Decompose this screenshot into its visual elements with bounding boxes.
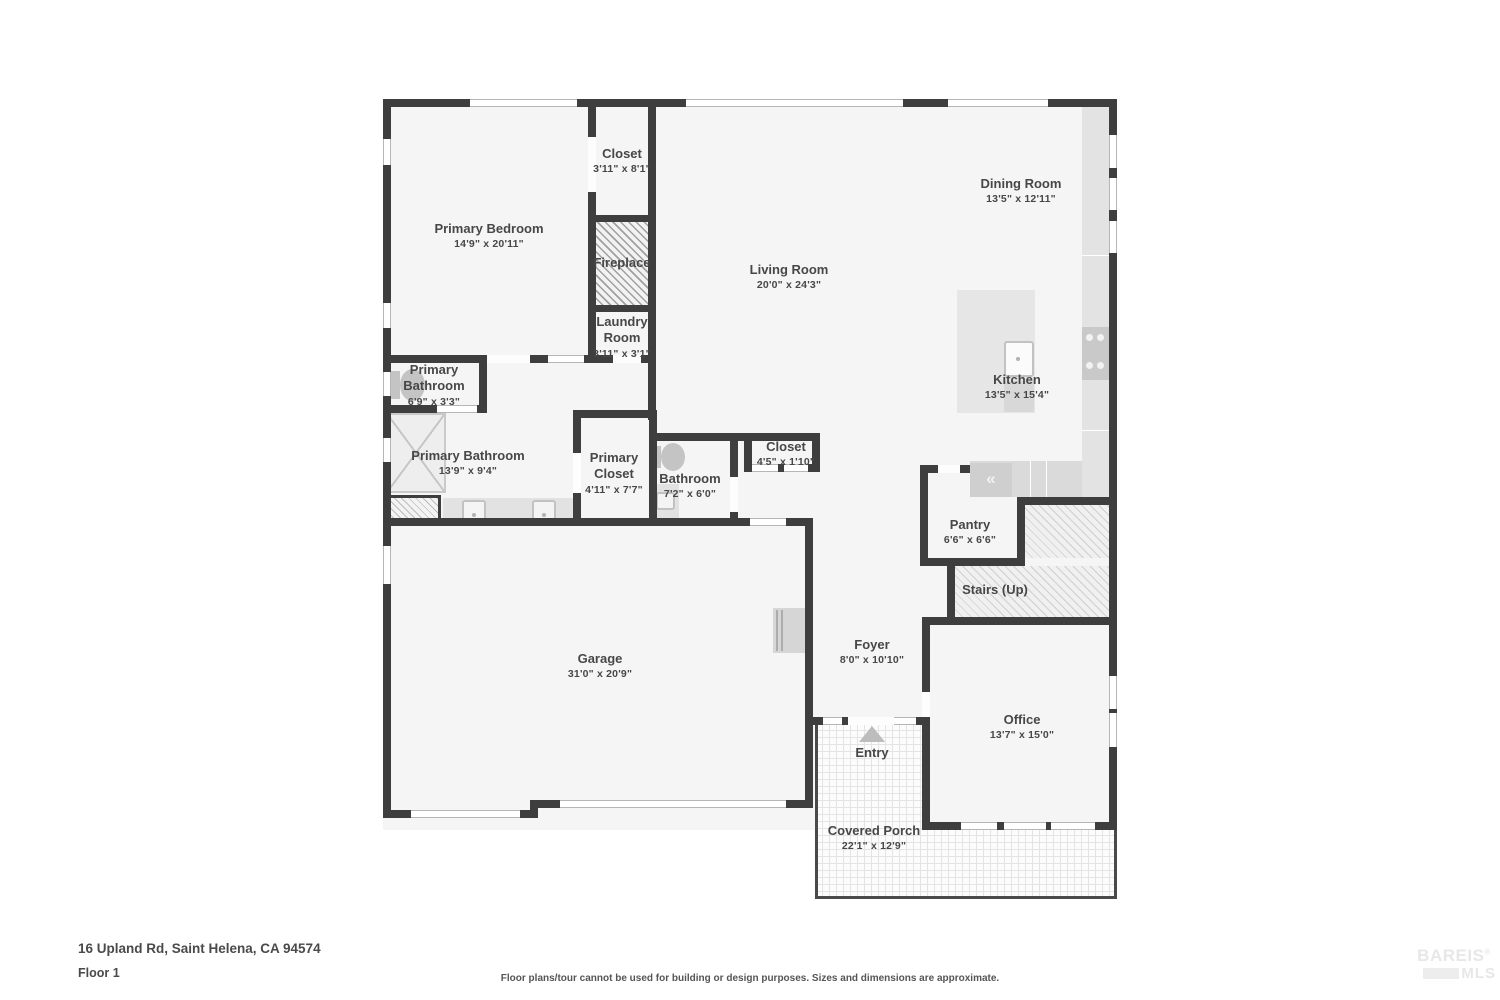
- counter-divider: [1082, 430, 1109, 431]
- wall-segment: [383, 396, 391, 438]
- wall-segment: [383, 99, 470, 107]
- entry-arrow-icon: [859, 726, 885, 742]
- wall-segment: [383, 328, 391, 372]
- porch-border-left: [815, 717, 818, 899]
- wall-segment: [1109, 253, 1117, 676]
- wall-segment: [922, 717, 930, 830]
- room-name: Bathroom: [645, 471, 735, 487]
- room-name: Closet: [572, 146, 672, 162]
- room-dims: 8'0" x 10'10": [817, 654, 927, 666]
- room-dims: 6'9" x 3'3": [393, 396, 475, 408]
- room-dims: 13'7" x 15'0": [967, 729, 1077, 741]
- wall-segment: [903, 99, 948, 107]
- room-name: Fireplace: [582, 255, 662, 271]
- logo-bar: [1423, 968, 1459, 979]
- window: [750, 518, 786, 526]
- wall-segment: [960, 465, 970, 473]
- window: [948, 99, 1048, 107]
- wall-segment: [916, 717, 930, 725]
- wall-segment: [530, 355, 548, 363]
- room-label-office: Office 13'7" x 15'0": [967, 712, 1077, 741]
- room-name: Stairs (Up): [940, 582, 1050, 598]
- room-label-living: Living Room 20'0" x 24'3": [729, 262, 849, 291]
- room-dims: 20'0" x 24'3": [729, 279, 849, 291]
- wall-segment: [573, 418, 581, 453]
- room-label-stairs: Stairs (Up): [940, 582, 1050, 598]
- wall-segment: [383, 518, 750, 526]
- burner-icon: [1086, 334, 1093, 341]
- room-dims: 3'11" x 3'1": [590, 348, 654, 360]
- door-opening: [922, 692, 930, 717]
- room-name: Garage: [540, 651, 660, 667]
- wall-segment: [997, 822, 1004, 830]
- window: [383, 546, 391, 584]
- room-label-pantry: Pantry 6'6" x 6'6": [925, 517, 1015, 546]
- room-name: Primary Closet: [574, 450, 654, 483]
- wall-segment: [922, 617, 1117, 625]
- wall-segment: [383, 165, 391, 303]
- wall-segment: [383, 584, 391, 818]
- wall-segment: [786, 518, 813, 526]
- wall-segment: [1048, 99, 1117, 107]
- wall-segment: [805, 518, 813, 808]
- water-heater-stripe: [776, 610, 778, 651]
- room-label-foyer: Foyer 8'0" x 10'10": [817, 637, 927, 666]
- room-label-garage: Garage 31'0" x 20'9": [540, 651, 660, 680]
- wall-segment: [588, 107, 596, 137]
- room-label-closet-top: Closet 3'11" x 8'1": [572, 146, 672, 175]
- room-dims: 22'1" x 12'9": [804, 840, 944, 852]
- room-label-covered-porch: Covered Porch 22'1" x 12'9": [804, 823, 944, 852]
- room-name: Primary Bedroom: [409, 221, 569, 237]
- room-label-dining: Dining Room 13'5" x 12'11": [961, 176, 1081, 205]
- wall-segment: [920, 558, 1025, 566]
- counter-divider: [1082, 255, 1109, 256]
- room-name: Foyer: [817, 637, 927, 653]
- kitchen-wall-counter: [1082, 107, 1109, 497]
- wall-segment: [520, 810, 538, 818]
- room-name: Office: [967, 712, 1077, 728]
- window: [470, 99, 577, 107]
- wall-segment: [1017, 497, 1025, 565]
- property-address: 16 Upland Rd, Saint Helena, CA 94574: [78, 941, 321, 956]
- wall-segment: [1109, 168, 1117, 178]
- window: [823, 717, 842, 725]
- room-name: Pantry: [925, 517, 1015, 533]
- burner-icon: [1097, 334, 1104, 341]
- room-name: Primary Bathroom: [388, 448, 548, 464]
- room-dims: 6'6" x 6'6": [925, 534, 1015, 546]
- stairs-hatch-upper: [1025, 503, 1109, 558]
- wall-segment: [538, 800, 560, 808]
- wall-segment: [383, 107, 391, 139]
- room-name: Laundry Room: [590, 314, 654, 347]
- burner-icon: [1097, 362, 1104, 369]
- window: [383, 303, 391, 328]
- room-name: Entry: [832, 745, 912, 761]
- wall-segment: [573, 493, 581, 525]
- room-dims: 4'11" x 7'7": [574, 484, 654, 496]
- floor-plan-canvas: «: [0, 0, 1500, 1000]
- room-dims: 4'5" x 1'10": [741, 456, 831, 468]
- room-label-kitchen: Kitchen 13'5" x 15'4": [967, 372, 1067, 401]
- wall-segment: [920, 465, 928, 565]
- wall-segment: [1095, 822, 1117, 830]
- disclaimer-text: Floor plans/tour cannot be used for buil…: [0, 973, 1500, 984]
- garage-door: [560, 800, 786, 808]
- window: [1004, 822, 1046, 830]
- room-name: Primary Bathroom: [393, 362, 475, 395]
- counter-divider: [1046, 461, 1047, 497]
- faucet-icon: [472, 513, 476, 517]
- room-label-primary-bedroom: Primary Bedroom 14'9" x 20'11": [409, 221, 569, 250]
- room-dims: 14'9" x 20'11": [409, 238, 569, 250]
- registered-mark-icon: ®: [1484, 947, 1490, 956]
- room-dims: 13'9" x 9'4": [388, 465, 548, 477]
- porch-border-bottom: [815, 896, 1117, 899]
- wall-segment: [730, 512, 738, 525]
- garage-door: [411, 810, 520, 818]
- room-dims: 3'11" x 8'1": [572, 163, 672, 175]
- room-name: Closet: [741, 439, 831, 455]
- faucet-icon: [542, 513, 546, 517]
- wall-segment: [573, 410, 657, 418]
- wall-segment: [813, 717, 823, 725]
- toilet-bowl-icon: [661, 443, 685, 471]
- wall-segment: [1109, 747, 1117, 830]
- wall-segment: [588, 215, 656, 222]
- window: [383, 139, 391, 165]
- room-dims: 13'5" x 12'11": [961, 193, 1081, 205]
- room-dims: 7'2" x 6'0": [645, 488, 735, 500]
- room-label-primary-closet: Primary Closet 4'11" x 7'7": [574, 450, 654, 496]
- room-label-bathroom: Bathroom 7'2" x 6'0": [645, 471, 735, 500]
- room-label-fireplace: Fireplace: [582, 255, 662, 271]
- window: [1109, 178, 1117, 210]
- door-opening: [487, 355, 530, 363]
- door-opening: [938, 465, 960, 473]
- wall-segment: [479, 355, 487, 412]
- room-label-closet-small: Closet 4'5" x 1'10": [741, 439, 831, 468]
- window: [1109, 221, 1117, 253]
- wall-segment: [577, 99, 686, 107]
- window: [686, 99, 903, 107]
- burner-icon: [1086, 362, 1093, 369]
- wall-segment: [530, 800, 538, 810]
- window: [1109, 676, 1117, 709]
- room-name: Dining Room: [961, 176, 1081, 192]
- window: [383, 372, 391, 396]
- logo-sub: MLS: [1461, 966, 1496, 981]
- wall-segment: [1109, 210, 1117, 221]
- window: [1051, 822, 1095, 830]
- room-name: Kitchen: [967, 372, 1067, 388]
- room-label-laundry: Laundry Room 3'11" x 3'1": [590, 314, 654, 360]
- wall-segment: [383, 810, 411, 818]
- room-dims: 13'5" x 15'4": [967, 389, 1067, 401]
- bareis-mls-logo: BAREIS® MLS: [1412, 947, 1496, 981]
- window: [548, 355, 584, 363]
- faucet-icon: [1016, 357, 1020, 361]
- room-dims: 31'0" x 20'9": [540, 668, 660, 680]
- window: [894, 717, 916, 725]
- counter-divider: [1030, 461, 1031, 497]
- wall-segment: [477, 405, 487, 413]
- room-name: Covered Porch: [804, 823, 944, 839]
- window: [961, 822, 997, 830]
- room-label-primary-bathroom-small: Primary Bathroom 6'9" x 3'3": [393, 362, 475, 408]
- refrigerator: «: [970, 463, 1012, 497]
- window: [1109, 135, 1117, 168]
- entry-door-opening: [848, 717, 894, 725]
- room-label-primary-bathroom-large: Primary Bathroom 13'9" x 9'4": [388, 448, 548, 477]
- logo-brand: BAREIS: [1417, 946, 1484, 965]
- wall-segment: [1017, 497, 1117, 505]
- room-label-entry: Entry: [832, 745, 912, 761]
- wall-segment: [1109, 107, 1117, 135]
- water-heater-stripe: [781, 610, 783, 651]
- room-name: Living Room: [729, 262, 849, 278]
- fridge-doors-icon: «: [986, 469, 995, 488]
- wall-segment: [588, 305, 656, 312]
- window: [1109, 713, 1117, 747]
